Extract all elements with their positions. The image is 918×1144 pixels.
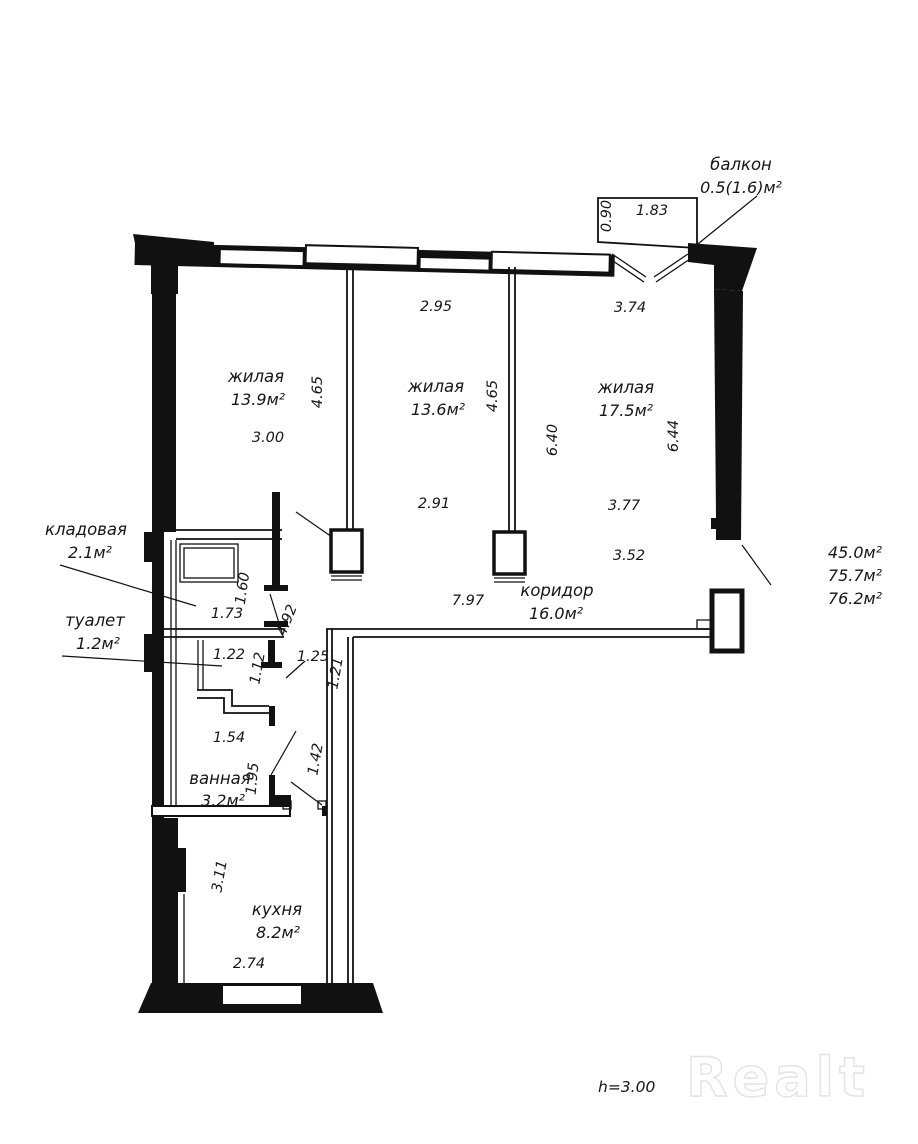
- dim-living2-side: 4.65: [485, 380, 501, 412]
- dim-balcony-depth: 0.90: [599, 200, 615, 232]
- living1-door-line: [296, 512, 332, 537]
- left-wall-lower: [152, 818, 178, 983]
- window-1: [220, 249, 304, 266]
- dim-living3-lower: 3.52: [613, 548, 645, 564]
- room-area-living3: 17.5м²: [599, 401, 654, 420]
- room-area-living2: 13.6м²: [411, 400, 466, 419]
- room-area-bathroom: 3.2м²: [201, 791, 246, 810]
- dim-living2-bottom: 2.91: [418, 496, 450, 512]
- partition-block-1: [331, 530, 362, 572]
- room-area-balcony: 0.5(1.6)м²: [700, 178, 782, 197]
- room-name-balcony: балкон: [710, 155, 772, 174]
- dim-bathroom-width: 1.54: [213, 730, 245, 746]
- dim-living1-side: 4.65: [310, 376, 326, 408]
- dim-living2-top: 2.95: [420, 299, 452, 315]
- kitchen-door-line: [291, 782, 322, 805]
- dim-balcony-width: 1.83: [636, 203, 668, 219]
- partition-block-2: [494, 532, 525, 574]
- kitchen-window: [222, 985, 302, 1005]
- dim-living3-top: 3.74: [614, 300, 646, 316]
- balcony-leader-line: [688, 196, 757, 252]
- ceiling-height-note: h=3.00: [598, 1078, 655, 1096]
- left-wall-upper: [152, 263, 176, 532]
- room-name-living2: жилая: [407, 377, 464, 396]
- room-area-corridor: 16.0м²: [529, 604, 584, 623]
- total-area: 75.7м²: [828, 566, 883, 585]
- left-wall-middle: [152, 532, 164, 818]
- room-name-storage: кладовая: [45, 520, 127, 539]
- dim-bathroom-height: 1.95: [244, 762, 263, 796]
- room-name-living1: жилая: [227, 367, 284, 386]
- exterior-walls: [133, 234, 771, 1013]
- window-2: [306, 245, 418, 266]
- total-area-with-balcony: 76.2м²: [828, 589, 883, 608]
- total-living-area: 45.0м²: [828, 543, 883, 562]
- room-area-kitchen: 8.2м²: [256, 923, 301, 942]
- dim-storage-width: 1.73: [211, 606, 243, 622]
- dim-corridor-length: 7.97: [452, 593, 485, 609]
- room-name-living3: жилая: [597, 378, 654, 397]
- floor-plan-page: балкон 0.5(1.6)м² жилая 13.9м² жилая 13.…: [0, 0, 918, 1144]
- dim-kitchen-height: 3.11: [209, 859, 230, 894]
- dim-living3-bottom: 3.77: [608, 498, 641, 514]
- dim-toilet-door: 1.25: [297, 649, 329, 665]
- realt-watermark: Realt: [686, 1046, 870, 1109]
- window-3: [419, 257, 489, 271]
- room-name-kitchen: кухня: [252, 900, 302, 919]
- room-name-corridor: коридор: [520, 581, 593, 600]
- dim-living1-bottom: 3.00: [252, 430, 284, 446]
- dim-toilet-height: 1.12: [247, 651, 268, 686]
- entrance-pier: [712, 591, 742, 651]
- totals-leader-line: [742, 545, 771, 585]
- room-name-bathroom: ванная: [189, 769, 251, 788]
- right-wall: [711, 289, 743, 540]
- room-area-living1: 13.9м²: [231, 390, 286, 409]
- dim-storage-height: 1.60: [233, 571, 253, 605]
- dim-kitchen-width: 2.74: [233, 956, 265, 972]
- room-name-toilet: туалет: [65, 611, 125, 630]
- storage-closet: [180, 544, 238, 582]
- room-area-storage: 2.1м²: [68, 543, 113, 562]
- dim-living3-side: 6.44: [666, 420, 682, 452]
- area-totals: 45.0м² 75.7м² 76.2м²: [828, 543, 883, 608]
- dim-bathroom-hall: 1.42: [305, 742, 326, 777]
- top-wall: [134, 241, 614, 277]
- dim-toilet-width: 1.22: [213, 647, 245, 663]
- floor-plan-svg: балкон 0.5(1.6)м² жилая 13.9м² жилая 13.…: [0, 0, 918, 1144]
- dim-living2-mid: 6.40: [545, 424, 561, 456]
- room-area-toilet: 1.2м²: [76, 634, 121, 653]
- bathroom-door-line: [271, 731, 296, 775]
- dim-storage-wall: 4.92: [274, 603, 301, 639]
